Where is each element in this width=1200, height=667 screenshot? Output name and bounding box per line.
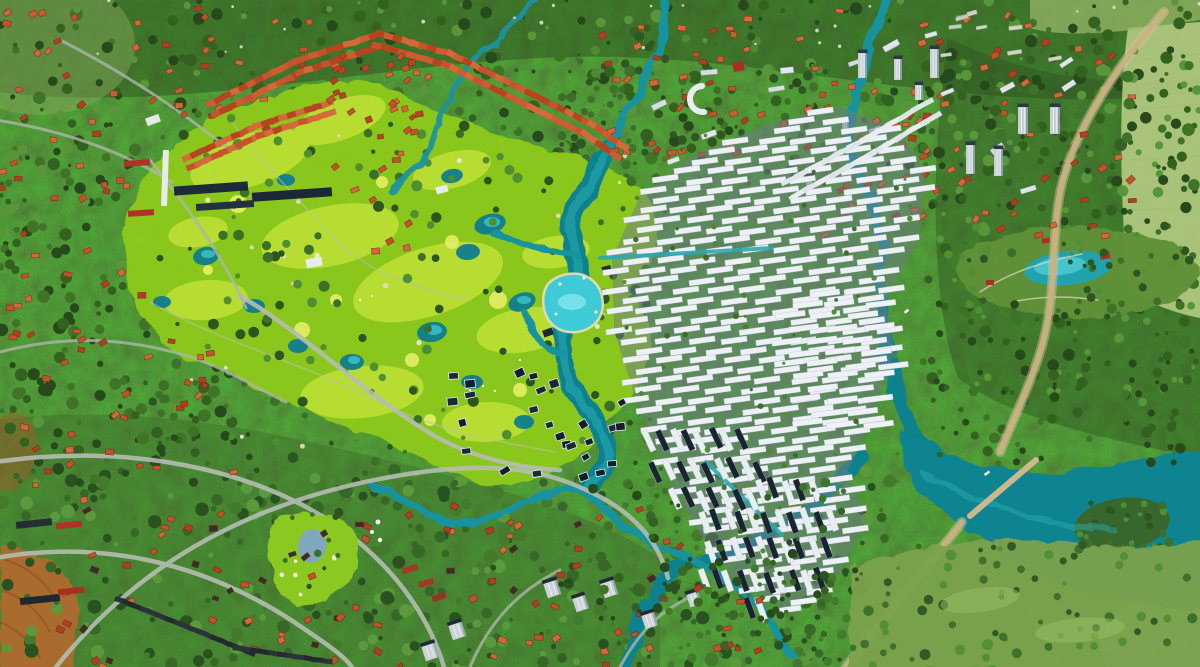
masterplan-aerial-render — [0, 0, 1200, 667]
highrise-towers-right-block — [966, 142, 976, 175]
grassland-bottomright — [846, 536, 1200, 667]
highrise-towers-right-block — [930, 46, 940, 79]
highrise-towers-right-block — [1050, 104, 1061, 135]
lagoon-pool — [558, 294, 586, 310]
highrise-towers-right-block — [994, 146, 1004, 177]
highrise-towers-right-block — [858, 50, 868, 79]
highrise-towers-right-block — [1018, 104, 1029, 135]
highrise-towers-right-block — [894, 56, 903, 81]
aerial-scene-canvas — [0, 0, 1200, 667]
highrise-towers-right-block — [915, 82, 924, 101]
